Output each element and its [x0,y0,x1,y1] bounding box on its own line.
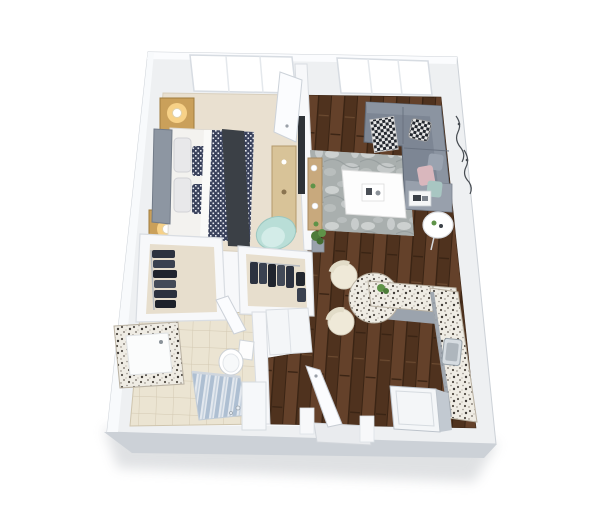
lamp-shade [173,109,182,118]
walk-in-closet-left [136,234,226,322]
shower-fixture [230,412,233,415]
refrigerator [390,386,452,432]
linen-cabinet [242,382,266,430]
floor-plant [311,229,326,252]
living-window [337,58,432,95]
pillow [174,138,191,172]
console-table [308,158,322,230]
decor-tray [409,191,431,206]
door-handle [314,374,317,377]
floorplan-image [0,0,600,510]
door-handle [285,124,288,127]
faucet [159,340,163,344]
nightstand-upper [160,98,194,132]
sink-basin [126,333,172,375]
shower-curtain [192,372,247,420]
shower [192,372,247,420]
shower-fixture [236,406,240,410]
kitchen-sink [442,338,463,366]
sequin-pillow [408,118,432,142]
floorplan-svg [0,0,600,510]
toilet-seat [223,354,239,372]
bar-stool-2 [328,309,354,335]
closet-middle [238,246,314,316]
coffee-table [342,170,406,218]
wall-tv [298,116,305,194]
door-jamb [300,408,314,434]
houndstooth-throw [370,116,398,152]
pillow [174,178,191,212]
headboard [152,129,172,224]
vanity-sink [114,322,184,388]
door-jamb [360,416,374,442]
